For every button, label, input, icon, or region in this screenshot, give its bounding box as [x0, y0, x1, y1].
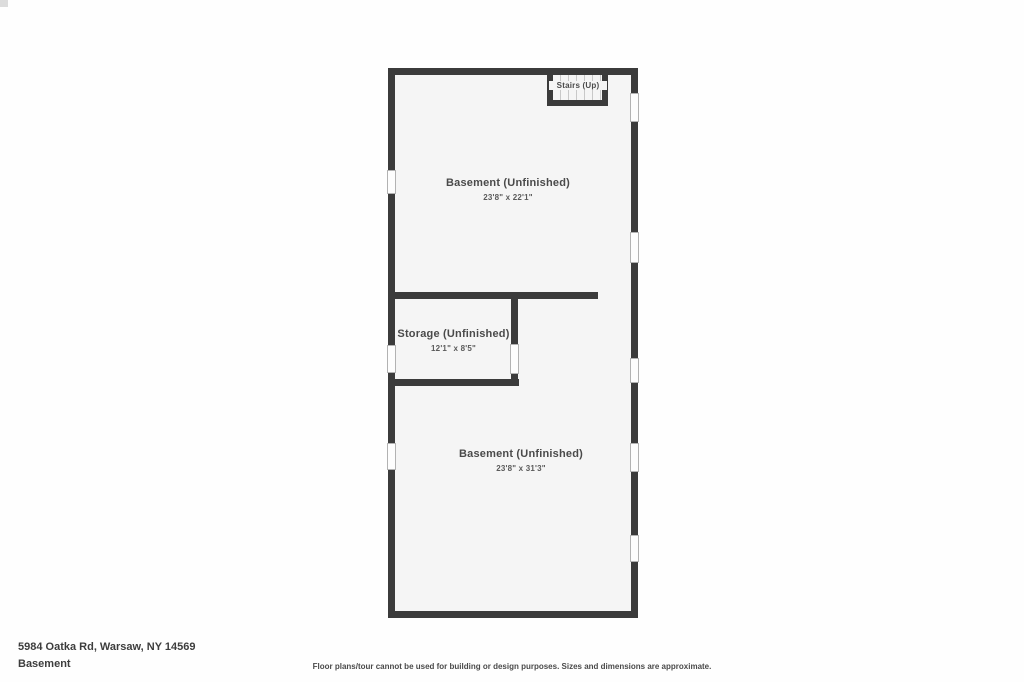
outer-wall-bottom	[388, 611, 638, 618]
room-name: Storage (Unfinished)	[395, 327, 512, 343]
stairs-wall-bottom	[547, 100, 608, 106]
room-label-basement-lower: Basement (Unfinished) 23'8" x 31'3"	[421, 447, 621, 475]
window	[630, 358, 639, 383]
corner-artifact	[0, 0, 8, 7]
room-label-basement-upper: Basement (Unfinished) 23'8" x 22'1"	[408, 176, 608, 204]
room-name: Basement (Unfinished)	[421, 447, 621, 463]
disclaimer-text: Floor plans/tour cannot be used for buil…	[0, 662, 1024, 671]
window	[387, 170, 396, 194]
interior-wall-mid	[388, 292, 598, 299]
window	[387, 443, 396, 470]
room-dimensions: 23'8" x 22'1"	[408, 192, 608, 204]
room-label-storage: Storage (Unfinished) 12'1" x 8'5"	[395, 327, 512, 355]
stairs-label: Stairs (Up)	[549, 81, 607, 90]
room-name: Basement (Unfinished)	[408, 176, 608, 192]
storage-wall-bottom	[388, 379, 519, 386]
floor-plan: Stairs (Up) Basement (Unfinished) 23'8" …	[388, 68, 638, 618]
window	[630, 535, 639, 562]
room-dimensions: 23'8" x 31'3"	[421, 463, 621, 475]
window	[630, 232, 639, 263]
storage-wall-right-lower	[511, 373, 518, 386]
window	[630, 443, 639, 472]
outer-wall-top	[388, 68, 638, 75]
window	[630, 93, 639, 122]
floorplan-page: Stairs (Up) Basement (Unfinished) 23'8" …	[0, 0, 1024, 682]
address-text: 5984 Oatka Rd, Warsaw, NY 14569	[18, 641, 196, 653]
storage-wall-right-upper	[511, 292, 518, 345]
room-dimensions: 12'1" x 8'5"	[395, 343, 512, 355]
outer-wall-left	[388, 68, 395, 618]
